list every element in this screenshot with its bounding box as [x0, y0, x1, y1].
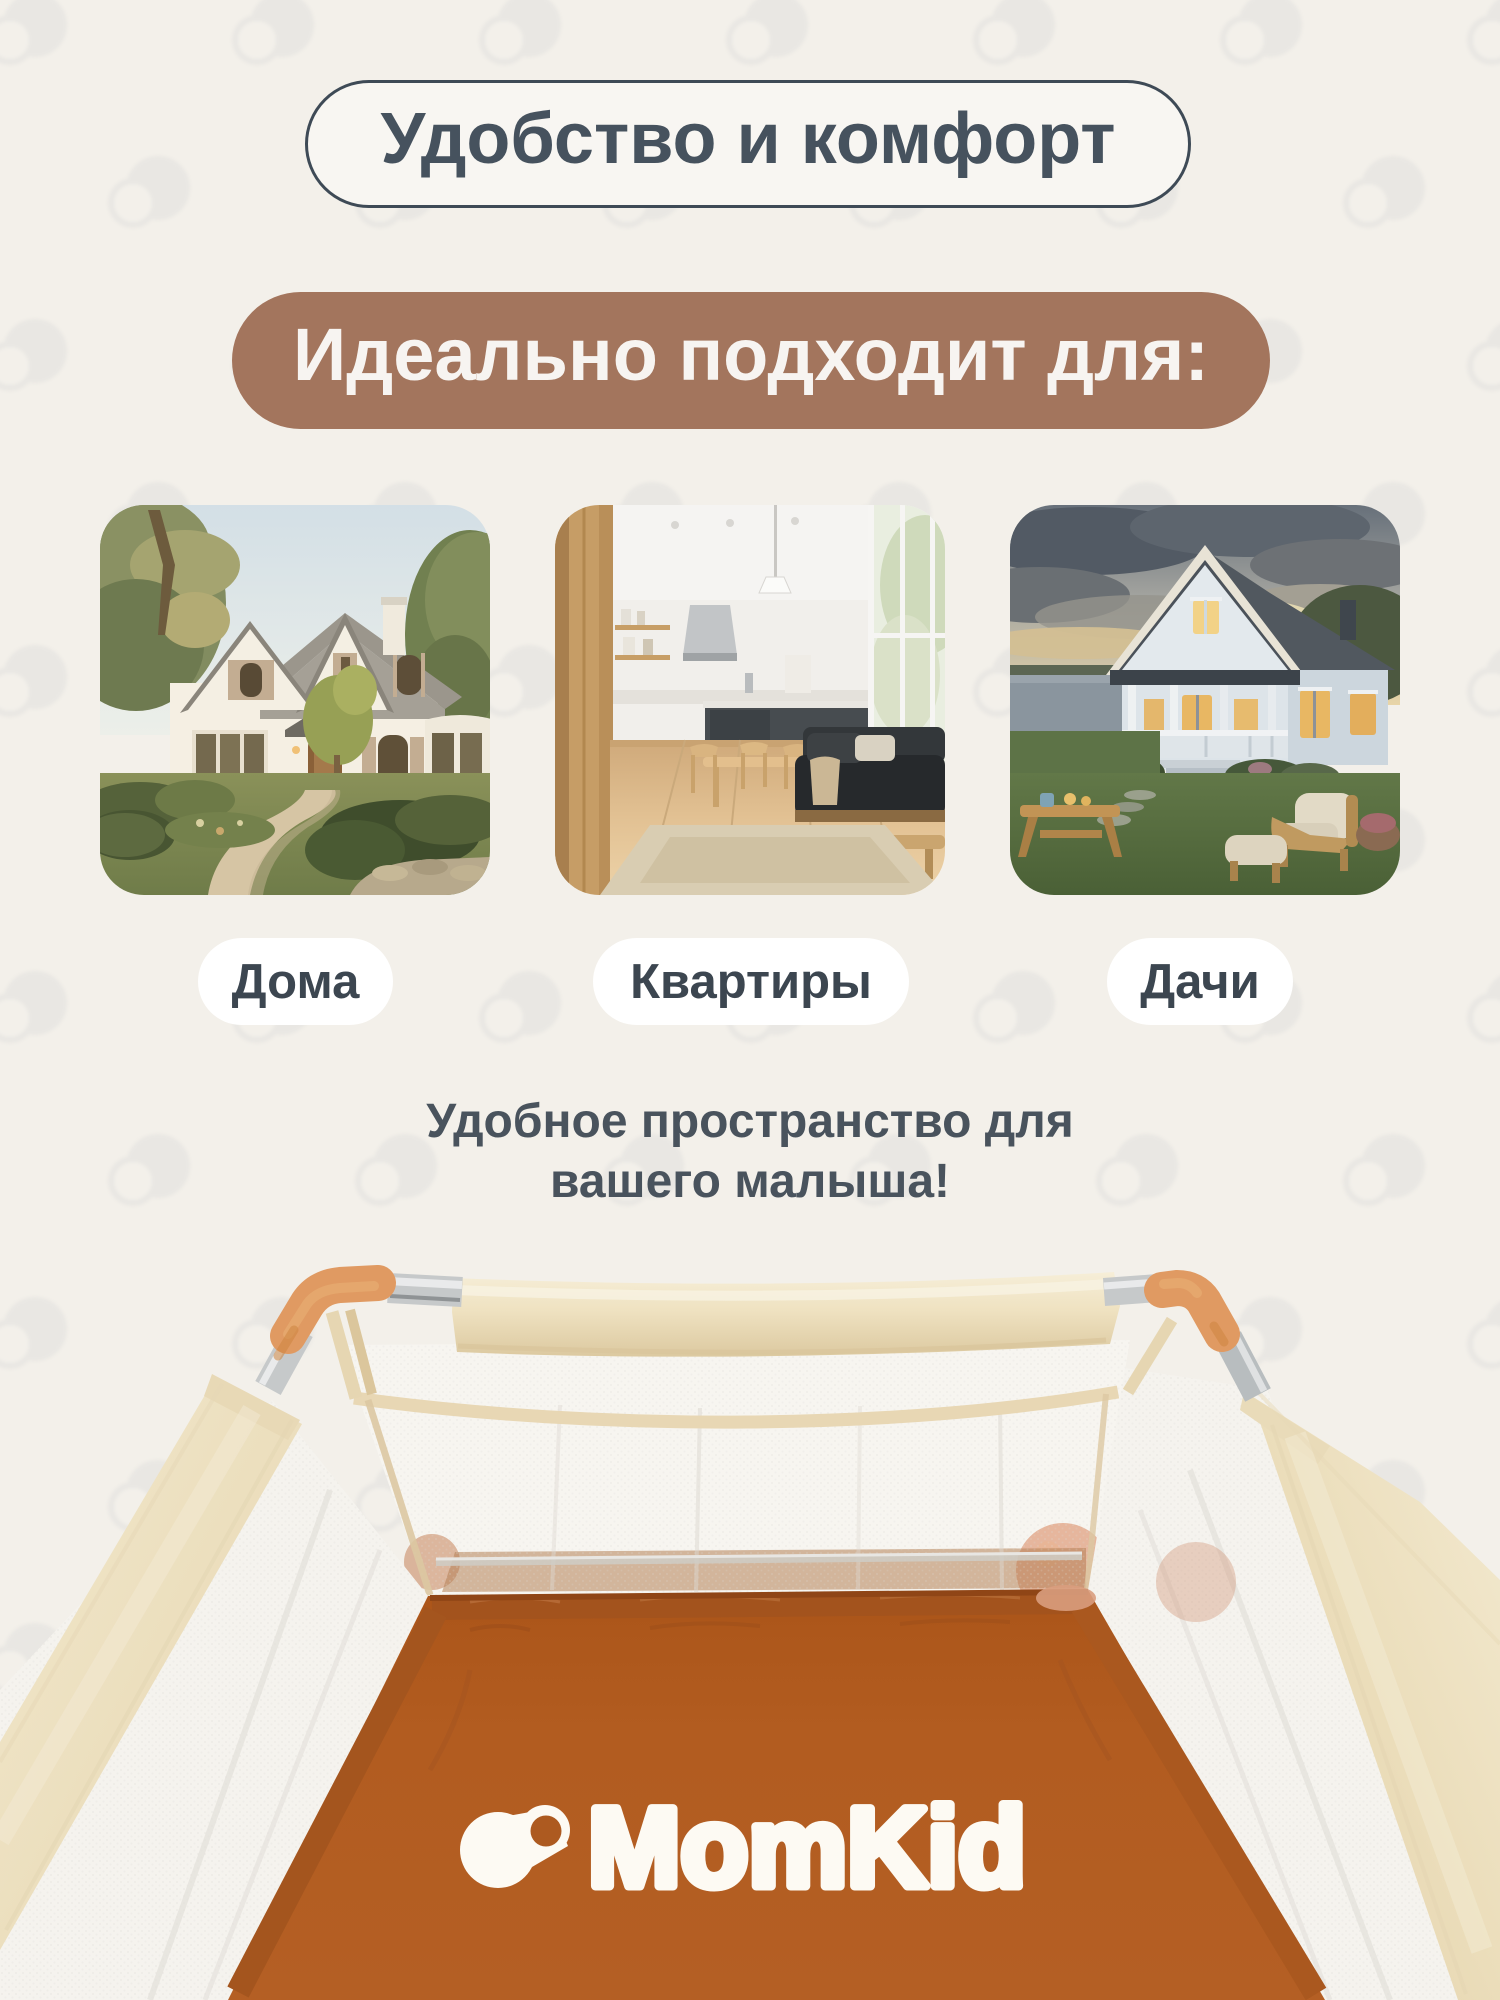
- svg-text:MomKid: MomKid: [588, 1785, 1026, 1910]
